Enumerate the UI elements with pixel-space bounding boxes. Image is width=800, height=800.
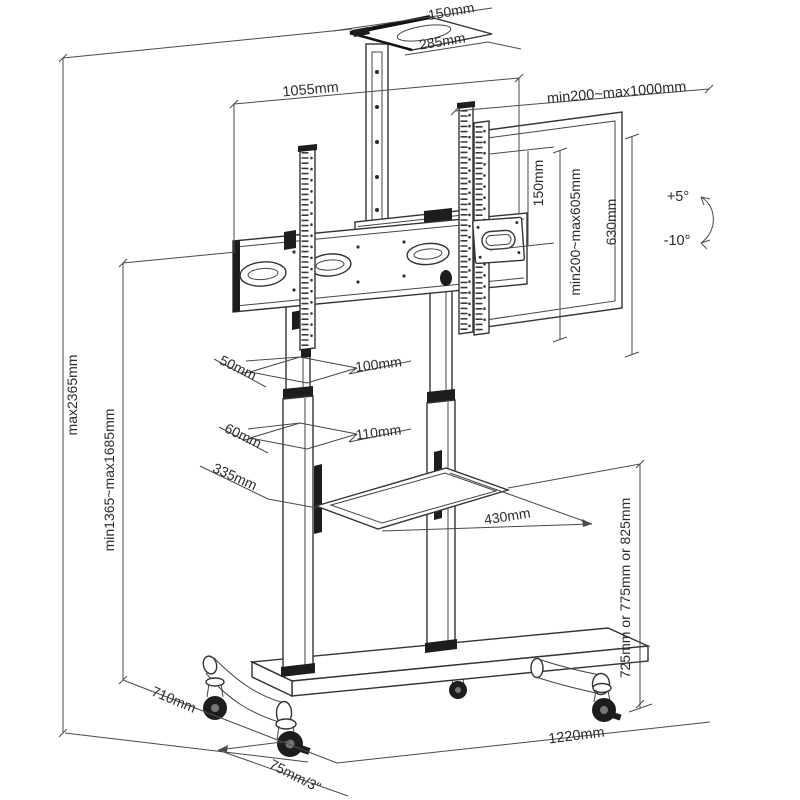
- dim-overall-height: max2365mm: [64, 355, 80, 436]
- dim-vesa-plate-height: 150mm: [530, 160, 546, 207]
- dim-caster-size: 75mm/3": [267, 756, 324, 795]
- tilt-knob: [440, 270, 452, 286]
- dim-tray-depth: 335mm: [210, 460, 259, 494]
- vesa-plate: [473, 217, 525, 263]
- vesa-rail-right: [457, 101, 475, 334]
- dim-top-shelf-depth: 150mm: [427, 0, 476, 23]
- dim-base-width: 1220mm: [548, 725, 606, 748]
- dim-tray-height-options: 725mm or 775mm or 825mm: [617, 498, 633, 679]
- caster-front-left: [276, 719, 311, 757]
- dim-base-depth: 710mm: [149, 683, 198, 716]
- middle-tray: [314, 450, 508, 534]
- vesa-rail-left: [298, 144, 317, 358]
- label-tilt-down: -10°: [664, 233, 691, 249]
- dim-bracket-height: 630mm: [603, 199, 619, 246]
- dim-upper-column-depth: 50mm: [217, 352, 259, 383]
- dim-crossbar-width: 1055mm: [282, 80, 340, 101]
- tray-bracket-left: [314, 464, 322, 534]
- dim-vesa-width-range: min200~max1000mm: [546, 79, 687, 107]
- tv-cart-technical-drawing: 150mm 285mm 1055mm min200~max1000mm 150m…: [0, 0, 800, 800]
- label-tilt-up: +5°: [667, 189, 689, 205]
- dim-lower-column-depth: 60mm: [222, 420, 264, 451]
- dim-tray-width: 430mm: [483, 505, 532, 528]
- caster-rear-left: [203, 678, 227, 720]
- drawing-canvas: 150mm 285mm 1055mm min200~max1000mm 150m…: [0, 0, 800, 800]
- dim-vesa-height-range: min200~max605mm: [567, 168, 583, 295]
- dim-upper-column-width: 100mm: [354, 353, 402, 375]
- dim-column-height-range: min1365~max1685mm: [101, 409, 117, 552]
- dim-lower-column-width: 110mm: [355, 421, 402, 442]
- tray-shelf: [316, 468, 508, 529]
- caster-front-right: [592, 684, 622, 723]
